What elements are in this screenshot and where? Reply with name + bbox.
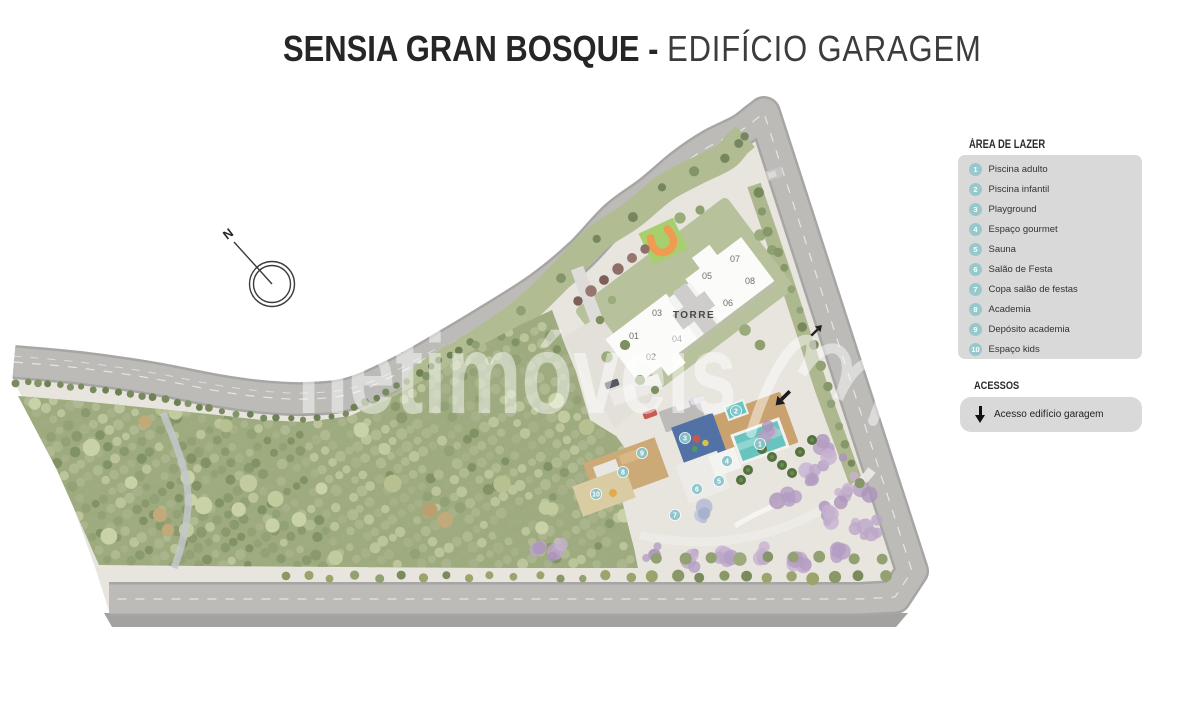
svg-text:1: 1 [758, 442, 762, 449]
svg-text:07: 07 [730, 254, 740, 264]
svg-text:6: 6 [695, 487, 699, 494]
svg-text:10: 10 [592, 492, 600, 499]
svg-text:9: 9 [640, 451, 644, 458]
svg-text:08: 08 [745, 276, 755, 286]
svg-text:7: 7 [673, 513, 677, 520]
svg-text:5: 5 [717, 479, 721, 486]
svg-text:N: N [220, 226, 236, 243]
svg-text:06: 06 [723, 298, 733, 308]
svg-text:8: 8 [621, 470, 625, 477]
svg-text:4: 4 [725, 459, 729, 466]
svg-text:05: 05 [702, 271, 712, 281]
